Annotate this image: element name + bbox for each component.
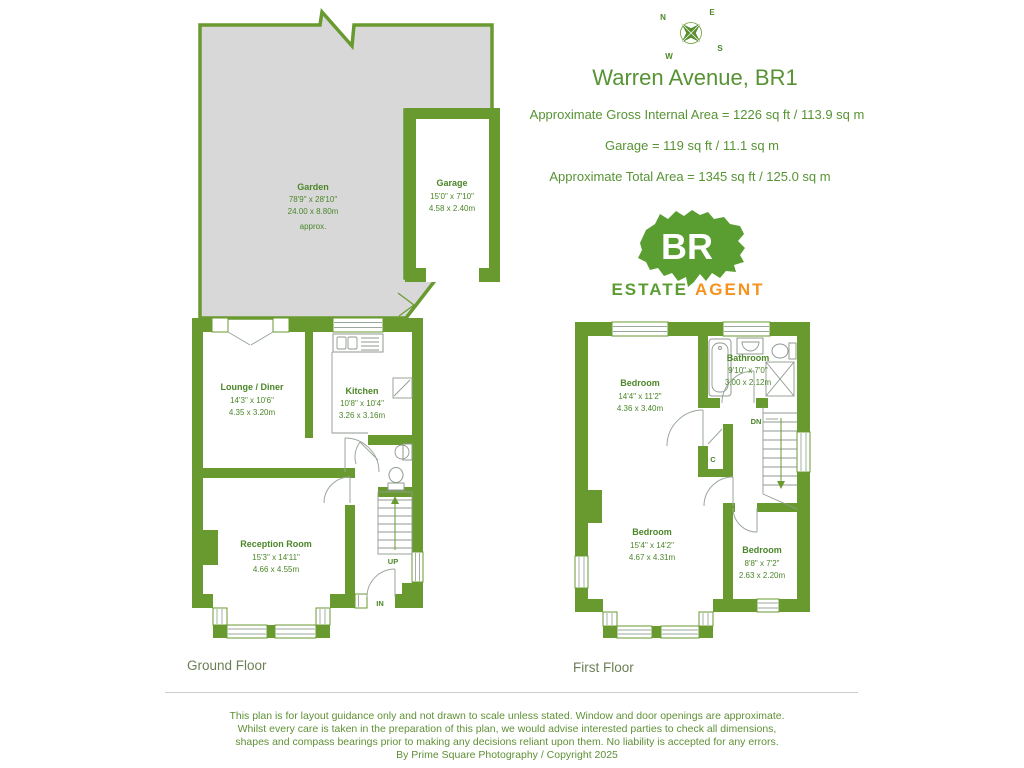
in-label: IN [376, 599, 384, 608]
wall-lounge-kitchen [305, 332, 313, 438]
kitchen-dims-ft: 10'8" x 10'4" [340, 399, 384, 408]
gross-area-text: Approximate Gross Internal Area = 1226 s… [530, 107, 865, 122]
compass-w: W [665, 52, 673, 61]
bedroom2-dims-ft: 15'4" x 14'2" [630, 541, 674, 550]
stairs-up-icon [378, 492, 412, 554]
bathroom-toilet-icon [772, 343, 796, 359]
cupboard-door-icon [708, 429, 722, 444]
bathroom-dims-ft: 9'10" x 7'0" [728, 366, 768, 375]
bathroom-window [723, 322, 770, 336]
bedroom1-label: Bedroom [620, 378, 660, 388]
garage-dims-m: 4.58 x 2.40m [429, 204, 476, 213]
kitchen-window [333, 318, 383, 332]
compass-icon: N E S W [660, 8, 723, 61]
bedroom3-label: Bedroom [742, 545, 782, 555]
garage-label: Garage [436, 178, 467, 188]
first-floor-plan: Bedroom 14'4" x 11'2" 4.36 x 3.40m Bathr… [575, 322, 810, 638]
dn-label: DN [751, 417, 762, 426]
brand-estate: ESTATE [611, 280, 688, 299]
bedroom2-door-icon [704, 477, 733, 506]
compass-s: S [717, 44, 723, 53]
page-title: Warren Avenue, BR1 [592, 65, 797, 90]
wc-toilet-icon [388, 468, 404, 491]
reception-door-icon [324, 477, 350, 503]
lounge-dims-ft: 14'3" x 10'6" [230, 396, 274, 405]
kitchen-sink-icon [333, 334, 383, 352]
lounge-dims-m: 4.35 x 3.20m [229, 408, 276, 417]
bedroom3-dims-m: 2.63 x 2.20m [739, 571, 786, 580]
garage-area-text: Garage = 119 sq ft / 11.1 sq m [605, 138, 779, 153]
entrance-door-icon [367, 569, 395, 597]
wall-bedroom2-bedroom3 [723, 503, 733, 612]
disclaimer-line3: shapes and compass bearings prior to mak… [235, 736, 778, 748]
cupboard-label: C [710, 455, 716, 464]
hall-window [412, 552, 423, 582]
garden-dims-ft: 78'9" x 28'10" [289, 195, 337, 204]
up-label: UP [388, 557, 398, 566]
reception-dims-ft: 15'3" x 14'11" [252, 553, 300, 562]
kitchen-dims-m: 3.26 x 3.16m [339, 411, 386, 420]
bathroom-basin-icon [737, 338, 763, 354]
disclaimer-block: This plan is for layout guidance only an… [229, 710, 784, 761]
wall-reception-hall [345, 505, 355, 594]
lounge-label: Lounge / Diner [221, 382, 284, 392]
french-doors-icon [228, 332, 273, 345]
disclaimer-line2: Whilst every care is taken in the prepar… [238, 723, 777, 735]
garden-dims-m: 24.00 x 8.80m [288, 207, 339, 216]
garage-dims-ft: 15'0" x 7'10" [430, 192, 474, 201]
first-floor-bay-window [603, 612, 713, 638]
bedroom2-label: Bedroom [632, 527, 672, 537]
bathroom-label: Bathroom [727, 353, 770, 363]
credit-line: By Prime Square Photography / Copyright … [396, 749, 618, 761]
garden-approx: approx. [300, 222, 327, 231]
logo-initials: BR [661, 226, 713, 267]
first-floor-label: First Floor [573, 660, 634, 675]
compass-n: N [660, 13, 666, 22]
reception-dims-m: 4.66 x 4.55m [253, 565, 300, 574]
header-block: Warren Avenue, BR1 Approximate Gross Int… [530, 65, 865, 184]
stairs-window [797, 432, 810, 472]
kitchen-cupboard-icon [393, 378, 412, 398]
wall-bedroom1-landing [698, 336, 708, 406]
chimney-breast [203, 530, 218, 565]
bedroom1-dims-m: 4.36 x 3.40m [617, 404, 664, 413]
bedroom1-window [612, 322, 668, 336]
ground-floor-plan: Lounge / Diner 14'3" x 10'6" 4.35 x 3.20… [192, 318, 423, 638]
bedroom3-dims-ft: 8'8" x 7'2" [745, 559, 780, 568]
garage-area: Garage 15'0" x 7'10" 4.58 x 2.40m [405, 108, 500, 282]
wc-basin-icon [395, 444, 412, 460]
disclaimer-line1: This plan is for layout guidance only an… [229, 710, 784, 722]
wall-lounge-reception [203, 468, 345, 478]
reception-label: Reception Room [240, 539, 312, 549]
total-area-text: Approximate Total Area = 1345 sq ft / 12… [549, 169, 830, 184]
bedroom1-door-icon [667, 410, 703, 446]
bedroom3-door-icon [733, 508, 757, 532]
bedroom3-window [757, 599, 779, 612]
garage-door-opening [426, 266, 479, 282]
garden-label: Garden [297, 182, 329, 192]
bedroom1-dims-ft: 14'4" x 11'2" [618, 392, 661, 401]
stairs-down-icon [763, 407, 797, 509]
bedroom2-side-window [575, 556, 588, 588]
brand-agent: AGENT [695, 280, 765, 299]
ground-floor-label: Ground Floor [187, 658, 267, 673]
chimney-breast-first [588, 490, 602, 523]
estate-agent-logo: BR ESTATEAGENT [611, 210, 764, 299]
floorplan-drawing: Garden 78'9" x 28'10" 24.00 x 8.80m appr… [0, 0, 1024, 768]
bedroom2-dims-m: 4.67 x 4.31m [629, 553, 676, 562]
ground-floor-bay-window [213, 608, 330, 638]
bathroom-dims-m: 3.00 x 2.12m [725, 378, 772, 387]
floorplan-page: Garden 78'9" x 28'10" 24.00 x 8.80m appr… [0, 0, 1024, 768]
kitchen-label: Kitchen [345, 386, 378, 396]
compass-e: E [709, 8, 715, 17]
brand-name: ESTATEAGENT [611, 280, 764, 299]
